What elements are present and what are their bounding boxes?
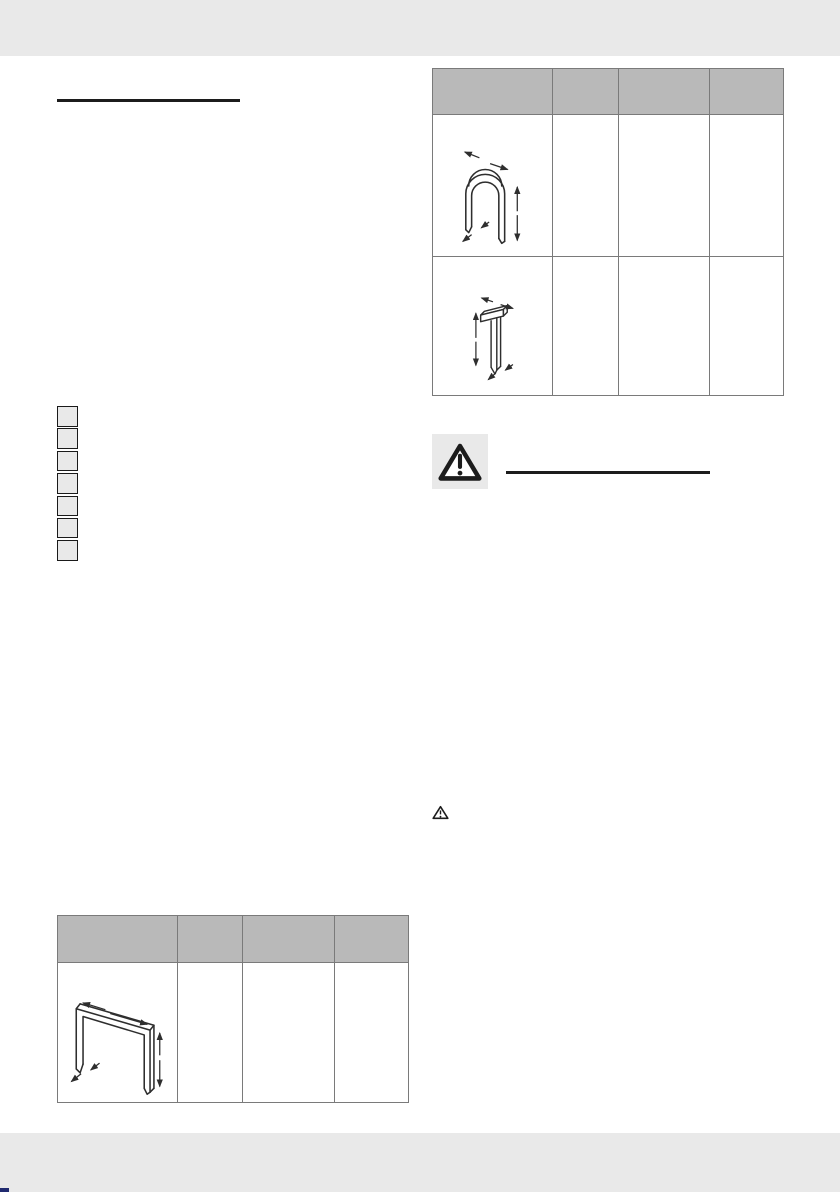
bottom-band xyxy=(0,1133,840,1192)
table-header-cell xyxy=(433,69,553,115)
table-cell xyxy=(178,963,243,1103)
table-header-cell xyxy=(335,916,409,963)
table-cell xyxy=(710,257,784,396)
staple-spec-table-right xyxy=(432,68,784,396)
narrow-crown-staple-icon xyxy=(435,118,551,254)
wide-crown-staple-icon xyxy=(60,966,176,1100)
warning-notice-box xyxy=(432,434,488,489)
manual-page xyxy=(0,0,840,1192)
step-marker-box xyxy=(57,428,78,449)
step-marker-box xyxy=(57,540,78,561)
table-cell xyxy=(335,963,409,1103)
warning-section-heading-underline xyxy=(506,471,710,474)
t-pin-nail-icon xyxy=(435,260,551,392)
table-row xyxy=(58,963,409,1103)
table-row xyxy=(433,115,784,257)
table-header-cell xyxy=(58,916,178,963)
step-marker-box xyxy=(57,518,78,539)
table-header-cell xyxy=(243,916,335,963)
table-cell xyxy=(243,963,335,1103)
step-marker-list xyxy=(57,406,78,563)
warning-triangle-icon xyxy=(437,441,483,483)
table-header-cell xyxy=(710,69,784,115)
step-marker-box xyxy=(57,406,78,427)
table-cell xyxy=(553,115,619,257)
table-cell xyxy=(553,257,619,396)
page-corner-mark xyxy=(0,1188,9,1192)
step-marker-box xyxy=(57,451,78,472)
staple-illustration-cell xyxy=(58,963,178,1103)
staple-illustration-cell xyxy=(433,115,553,257)
table-header-cell xyxy=(619,69,710,115)
step-marker-box xyxy=(57,496,78,517)
table-header-cell xyxy=(553,69,619,115)
step-marker-box xyxy=(57,473,78,494)
table-header-cell xyxy=(178,916,243,963)
warning-triangle-small-icon xyxy=(432,805,449,820)
staple-spec-table-left xyxy=(57,915,409,1103)
top-band xyxy=(0,0,840,56)
staple-illustration-cell xyxy=(433,257,553,396)
left-section-heading-underline xyxy=(57,99,240,102)
inline-note xyxy=(432,805,449,820)
table-row xyxy=(433,257,784,396)
table-cell xyxy=(710,115,784,257)
table-cell xyxy=(619,257,710,396)
table-cell xyxy=(619,115,710,257)
